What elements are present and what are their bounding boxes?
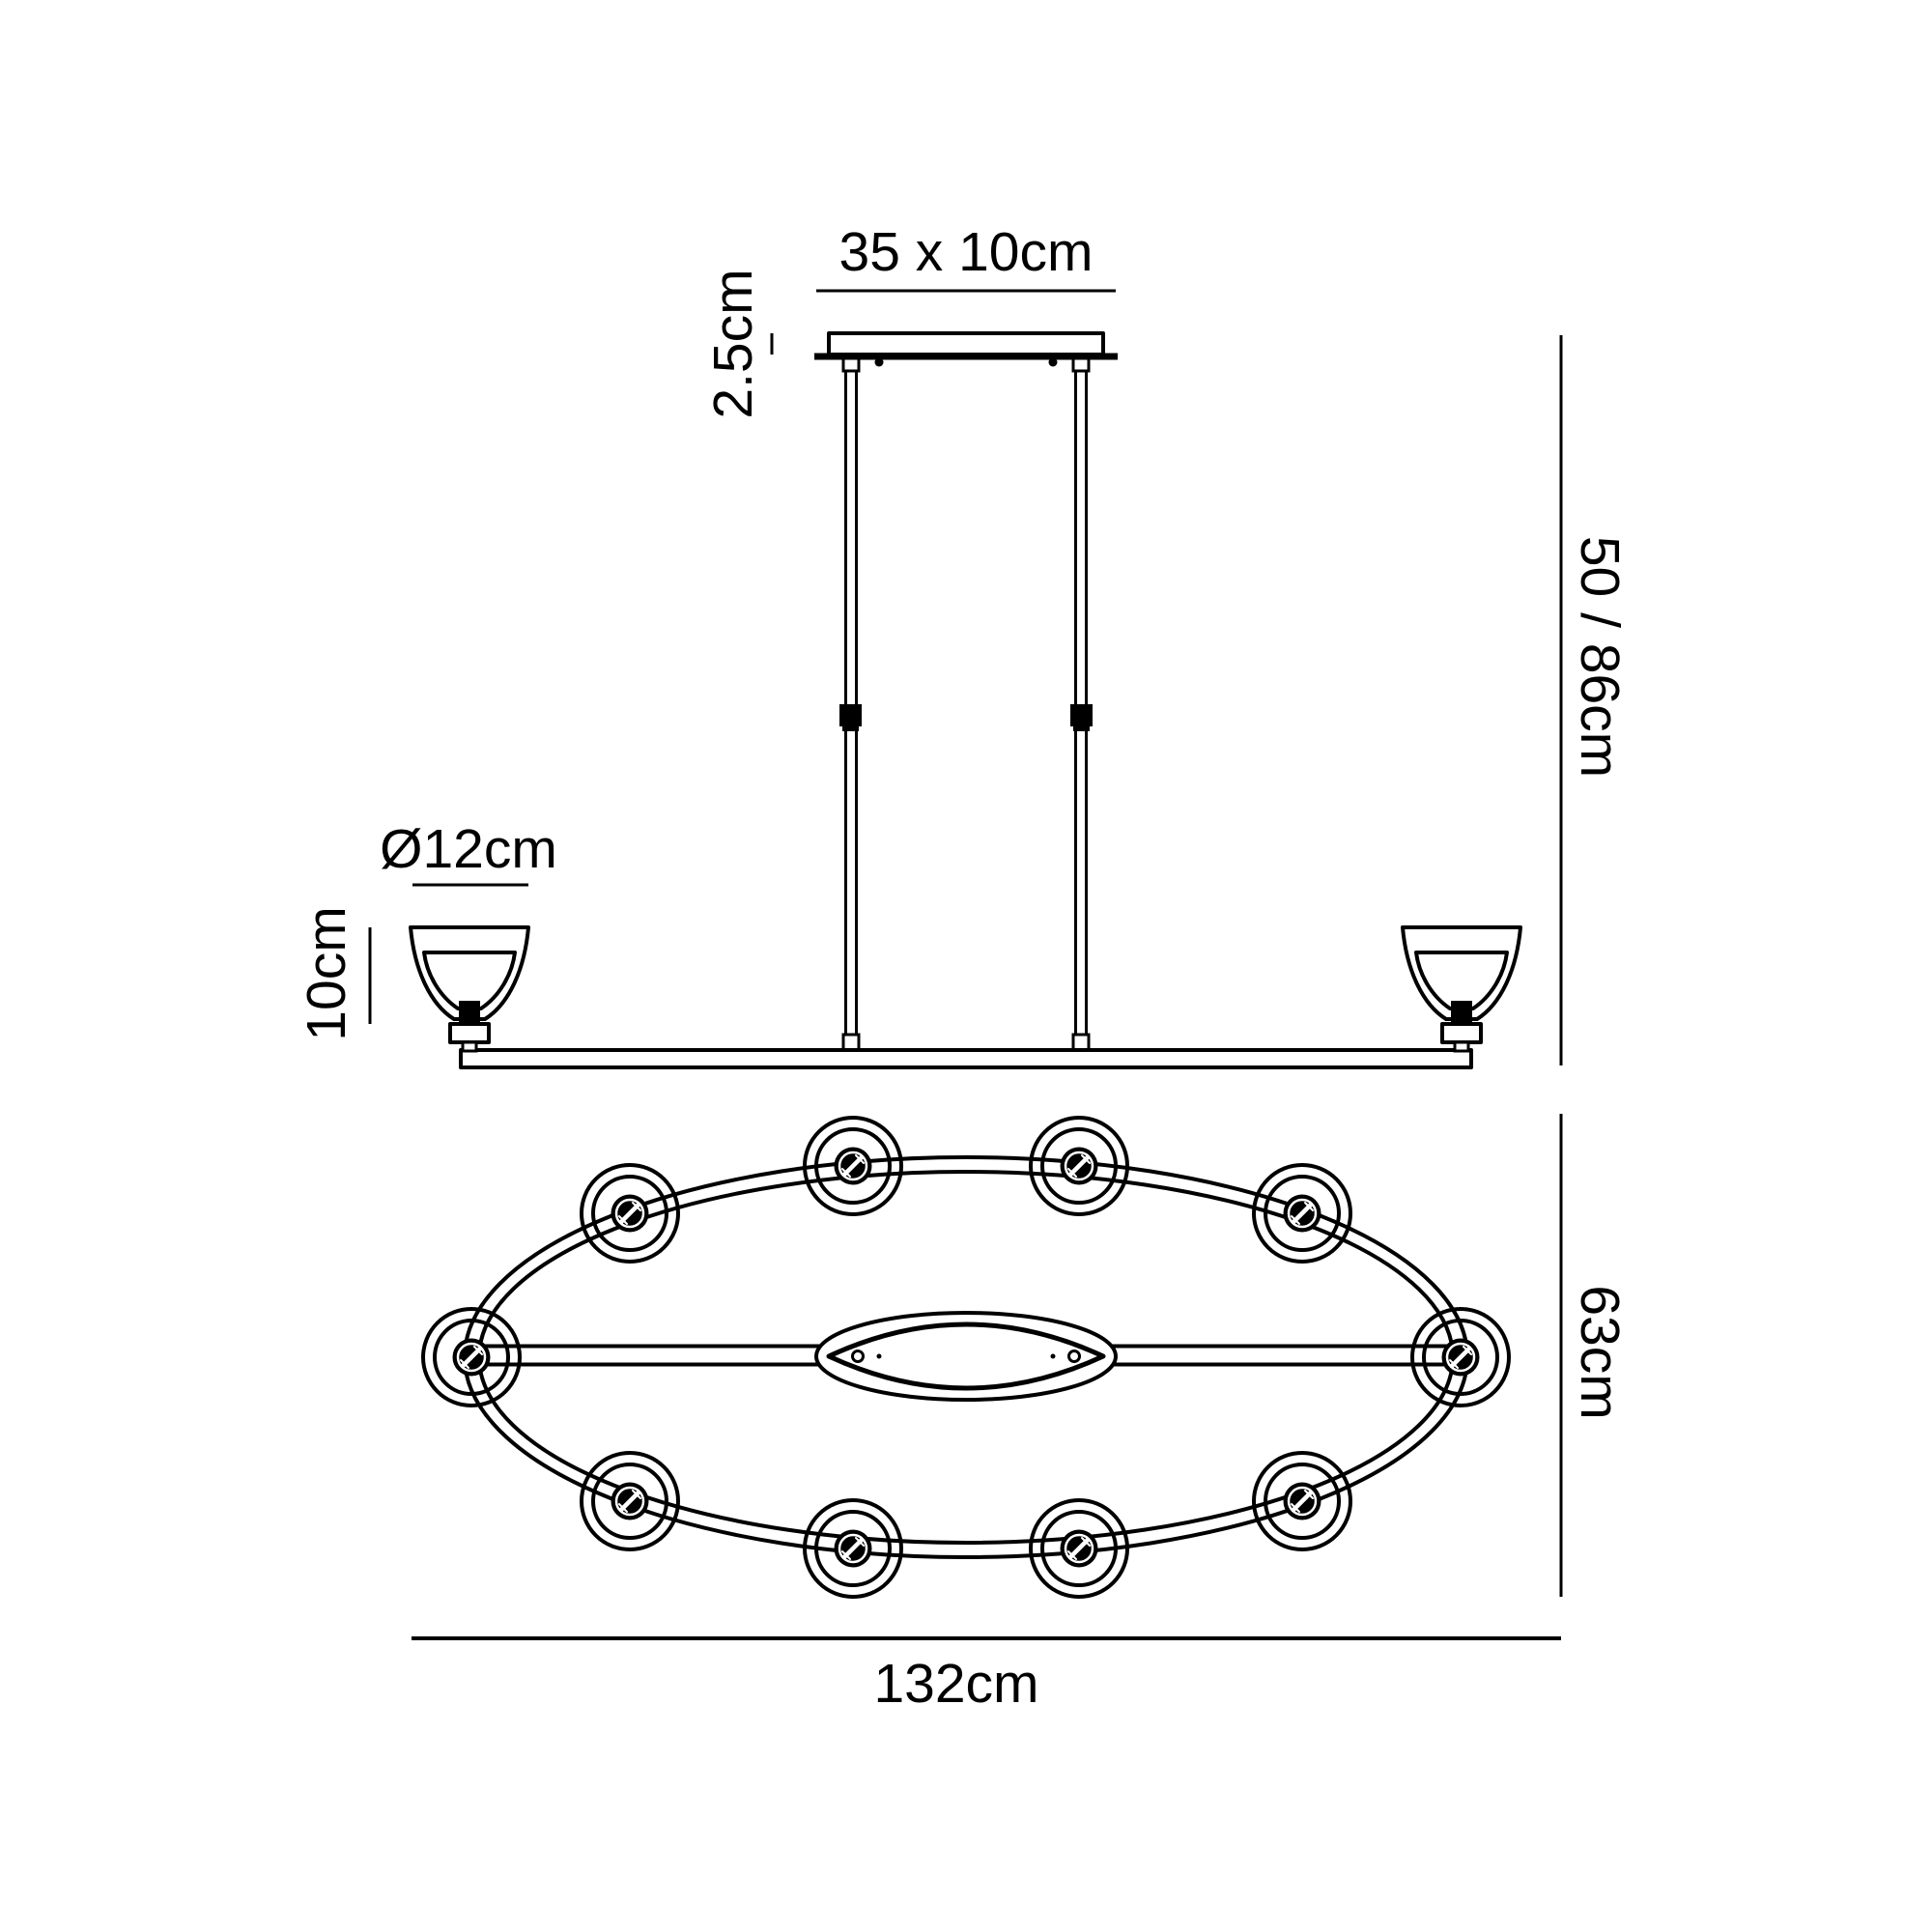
canopy-screw-right bbox=[1049, 358, 1058, 367]
lamp-shade-left bbox=[411, 927, 528, 1051]
canopy-hole-right bbox=[1069, 1351, 1080, 1362]
side-view: 35 x 10cm 2.5cm Ø12cm 10cm 50 / 86cm bbox=[296, 221, 1631, 1067]
shade-height-label: 10cm bbox=[296, 906, 357, 1040]
suspension-rod-left bbox=[839, 358, 862, 1050]
canopy-dot-right bbox=[1051, 1354, 1056, 1359]
diagram-canvas: 35 x 10cm 2.5cm Ø12cm 10cm 50 / 86cm bbox=[0, 0, 1932, 1932]
support-bar bbox=[461, 1050, 1471, 1067]
plan-center-canopy bbox=[816, 1313, 1116, 1400]
canopy-screw-left bbox=[875, 358, 884, 367]
fixture-dimension-diagram: 35 x 10cm 2.5cm Ø12cm 10cm 50 / 86cm bbox=[0, 0, 1932, 1932]
plan-width-label: 132cm bbox=[873, 1653, 1038, 1715]
rod-adjuster-left bbox=[839, 704, 862, 726]
canopy-size-label: 35 x 10cm bbox=[839, 221, 1094, 283]
canopy-hole-left bbox=[853, 1351, 864, 1362]
shade-diameter-label: Ø12cm bbox=[380, 818, 557, 880]
plan-view: 63cm 132cm bbox=[412, 1114, 1631, 1715]
rod-adjuster-right bbox=[1070, 704, 1093, 726]
canopy-dot-left bbox=[877, 1354, 882, 1359]
lamp-shade-right bbox=[1403, 927, 1520, 1051]
canopy-height-label: 2.5cm bbox=[702, 269, 764, 418]
plan-depth-label: 63cm bbox=[1569, 1285, 1631, 1419]
suspension-rod-right bbox=[1070, 358, 1093, 1050]
drop-height-label: 50 / 86cm bbox=[1569, 536, 1631, 778]
